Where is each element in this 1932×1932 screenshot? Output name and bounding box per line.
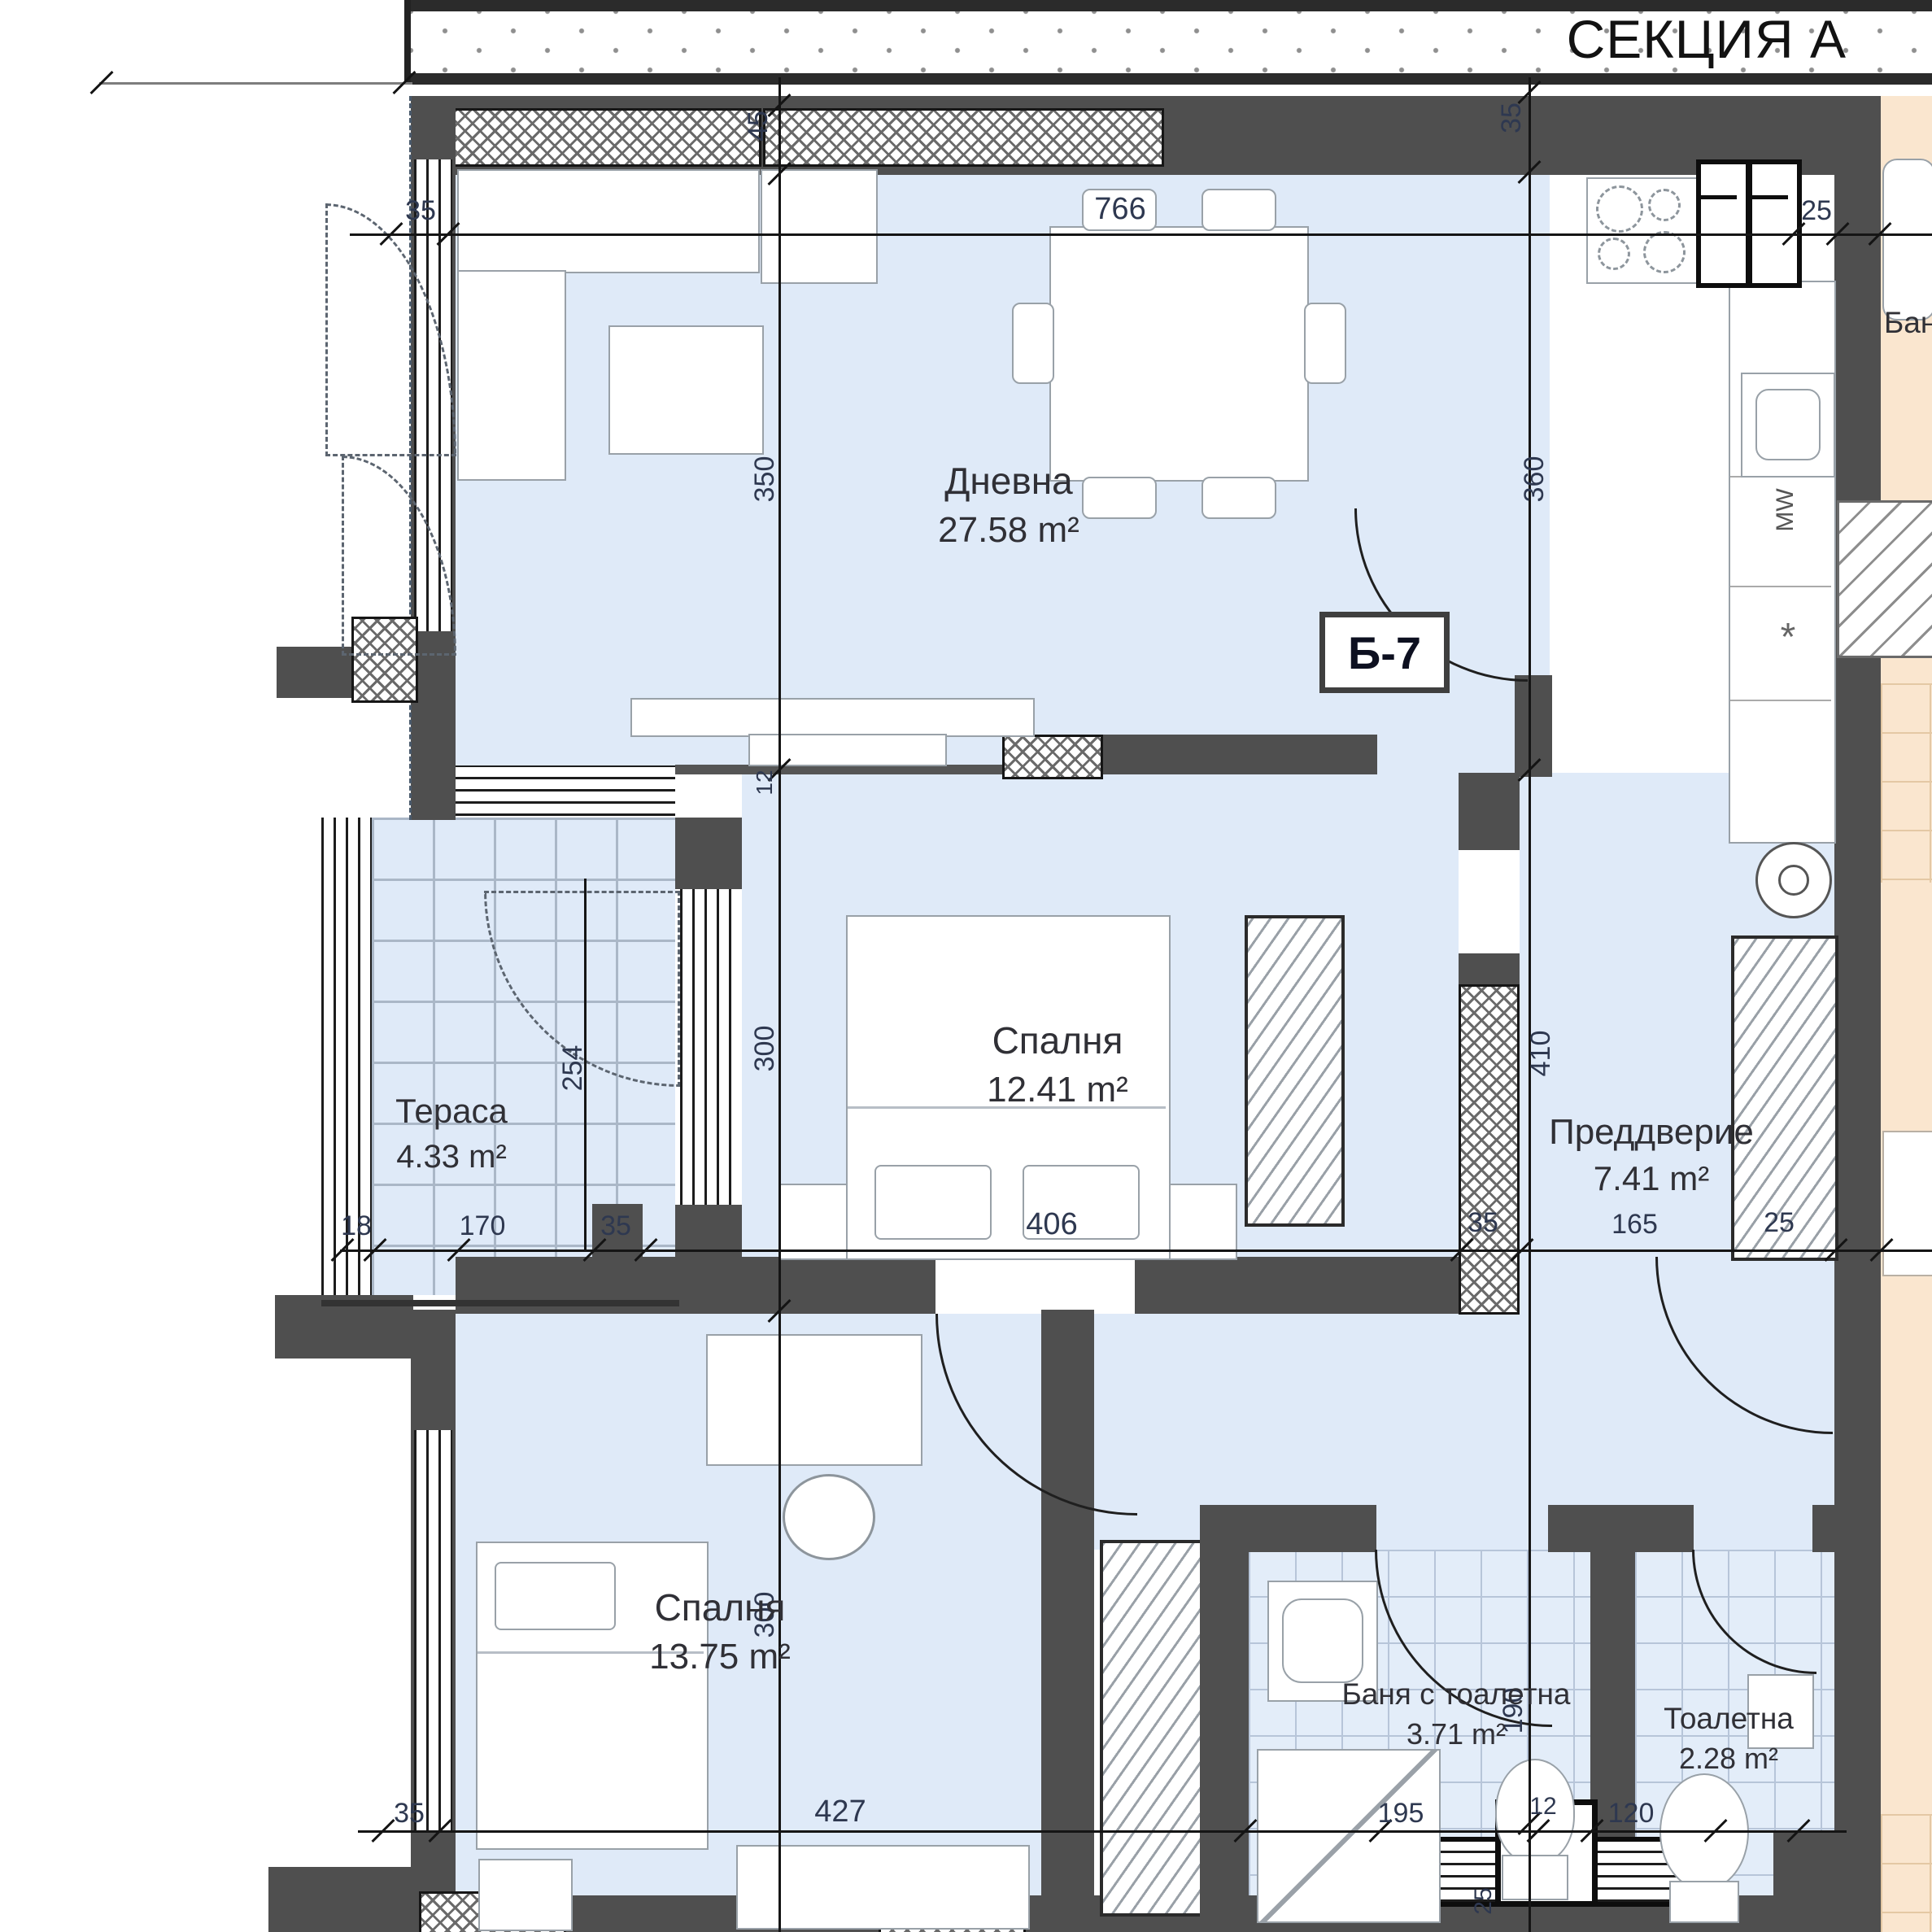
reference-line xyxy=(99,82,412,85)
room-label-hallway: Преддверие 7.41 m² xyxy=(1509,1108,1794,1202)
shaft-hatched xyxy=(1837,500,1932,658)
chair xyxy=(1202,189,1276,231)
dim-label: 300 xyxy=(751,1014,778,1083)
wall xyxy=(1459,773,1520,850)
room-area: 12.41 m² xyxy=(895,1066,1220,1114)
nightstand xyxy=(779,1184,848,1260)
header-band-bottom-bar xyxy=(411,73,1932,85)
header-band-edge xyxy=(404,0,411,85)
wall xyxy=(675,818,742,889)
terrace-edge-line xyxy=(321,1300,679,1306)
room-area: 13.75 m² xyxy=(569,1633,870,1681)
dim-label: 195 xyxy=(1360,1799,1441,1827)
fridge-divider xyxy=(1700,195,1737,199)
dim-label: 254 xyxy=(559,1034,587,1102)
floor-plan: СЕКЦИЯ А Баня xyxy=(0,0,1932,1932)
pillow xyxy=(874,1165,992,1240)
freezer-divider xyxy=(1751,195,1788,199)
desk xyxy=(706,1334,922,1466)
room-name: Преддверие xyxy=(1509,1108,1794,1156)
dim-label: 25 xyxy=(1788,197,1845,225)
room-area: 7.41 m² xyxy=(1509,1156,1794,1202)
burner-icon xyxy=(1643,231,1686,273)
room-area: 4.33 m² xyxy=(342,1135,561,1179)
dim-label: 120 xyxy=(1590,1799,1672,1827)
sink-basin xyxy=(1755,389,1821,460)
wall xyxy=(1812,1505,1834,1552)
dim-line xyxy=(340,1249,1932,1252)
dim-label: 35 xyxy=(381,1799,438,1827)
counter-divider xyxy=(1730,700,1831,701)
room-name: Спалня xyxy=(895,1015,1220,1066)
room-label-bedroom1: Спалня 12.41 m² xyxy=(895,1015,1220,1114)
room-name: Спалня xyxy=(569,1582,870,1633)
washing-machine-drum xyxy=(1778,865,1809,896)
neighbor-tiled-floor xyxy=(1881,683,1932,883)
bathtub-icon xyxy=(1882,159,1932,321)
dim-label: 410 xyxy=(1527,1019,1555,1088)
room-area: 2.28 m² xyxy=(1615,1739,1843,1779)
wardrobe-icon xyxy=(1245,915,1345,1227)
room-name: Дневна xyxy=(846,456,1171,506)
microwave-label: MW xyxy=(1773,482,1798,539)
neighbor-room-label: Баня xyxy=(1884,303,1932,343)
dim-label: 25 xyxy=(1751,1209,1808,1236)
coffee-table xyxy=(608,325,764,455)
dim-label: 35 xyxy=(1498,94,1525,142)
wall xyxy=(675,1205,742,1312)
dim-label: 35 xyxy=(587,1212,644,1240)
wall-hatched xyxy=(1002,735,1103,779)
sliding-door-icon xyxy=(456,765,675,816)
wall xyxy=(268,1867,411,1932)
dining-table xyxy=(1049,226,1309,482)
room-name: Тераса xyxy=(342,1088,561,1135)
chair xyxy=(1202,477,1276,519)
wall-hatched xyxy=(763,108,1164,167)
room-label-terrace: Тераса 4.33 m² xyxy=(342,1088,561,1179)
wall xyxy=(1459,953,1520,984)
nightstand xyxy=(478,1859,573,1931)
neighbor-fixture xyxy=(1882,1131,1932,1276)
dim-label: 25 xyxy=(1472,1877,1496,1925)
wall xyxy=(1249,1505,1376,1552)
dim-label: 18 xyxy=(332,1212,381,1240)
toilet-tank xyxy=(1502,1855,1568,1900)
fridge-icon xyxy=(1696,159,1751,288)
room-name: Тоалетна xyxy=(1615,1699,1843,1739)
neighbor-unit-floor xyxy=(1881,96,1932,1932)
burner-icon xyxy=(1598,238,1630,270)
dim-label: 766 xyxy=(1075,194,1165,225)
dim-label: 170 xyxy=(446,1212,519,1240)
wall xyxy=(1548,1505,1694,1552)
chair xyxy=(1012,303,1054,384)
dishwasher-star: * xyxy=(1764,618,1812,657)
wall xyxy=(1200,1505,1249,1932)
dim-label: 165 xyxy=(1596,1210,1673,1238)
wall xyxy=(277,647,351,698)
wall xyxy=(1098,735,1377,774)
dim-label: 360 xyxy=(1520,445,1548,513)
room-label-bathroom: Баня с тоалетна 3.71 m² xyxy=(1269,1674,1643,1755)
dim-label: 12 xyxy=(753,763,776,802)
section-title: СЕКЦИЯ А xyxy=(1383,8,1847,70)
sink-basin xyxy=(1282,1598,1363,1683)
room-area: 3.71 m² xyxy=(1269,1715,1643,1755)
window-icon xyxy=(680,889,737,1205)
dim-label: 427 xyxy=(796,1796,885,1827)
desk-chair xyxy=(783,1474,875,1560)
burner-icon xyxy=(1648,189,1681,221)
dim-label: 45 xyxy=(744,102,772,150)
counter-divider xyxy=(1730,586,1831,587)
toilet-tank xyxy=(1669,1881,1739,1923)
kitchen-counter xyxy=(1729,281,1836,844)
wall xyxy=(1773,1830,1834,1897)
dim-label: 12 xyxy=(1523,1795,1563,1819)
dim-label: 350 xyxy=(751,445,778,513)
room-label-toilet: Тоалетна 2.28 m² xyxy=(1615,1699,1843,1779)
sofa xyxy=(457,169,760,273)
tv-cabinet xyxy=(630,698,1035,737)
dim-label: 35 xyxy=(392,197,449,225)
wall-hatched xyxy=(423,108,761,167)
chair xyxy=(1304,303,1346,384)
dim-label: 35 xyxy=(1454,1209,1511,1236)
burner-icon xyxy=(1596,185,1643,233)
dim-line xyxy=(358,1830,1847,1833)
room-area: 27.58 m² xyxy=(846,506,1171,554)
wall xyxy=(1515,675,1552,777)
sofa xyxy=(457,270,566,481)
room-label-living: Дневна 27.58 m² xyxy=(846,456,1171,554)
dim-line xyxy=(1529,77,1531,1932)
neighbor-tiled-floor-2 xyxy=(1881,1814,1932,1932)
wall xyxy=(1834,96,1881,1932)
wardrobe-icon xyxy=(1100,1540,1204,1917)
shower-icon xyxy=(1257,1749,1441,1923)
wall xyxy=(1135,1257,1459,1314)
dim-label: 406 xyxy=(1007,1209,1097,1240)
room-label-bedroom2: Спалня 13.75 m² xyxy=(569,1582,870,1681)
window-icon xyxy=(414,1430,452,1833)
room-name: Баня с тоалетна xyxy=(1269,1674,1643,1715)
nightstand xyxy=(1169,1184,1237,1260)
dim-line xyxy=(350,233,1932,236)
unit-code-badge: Б-7 xyxy=(1319,612,1450,693)
